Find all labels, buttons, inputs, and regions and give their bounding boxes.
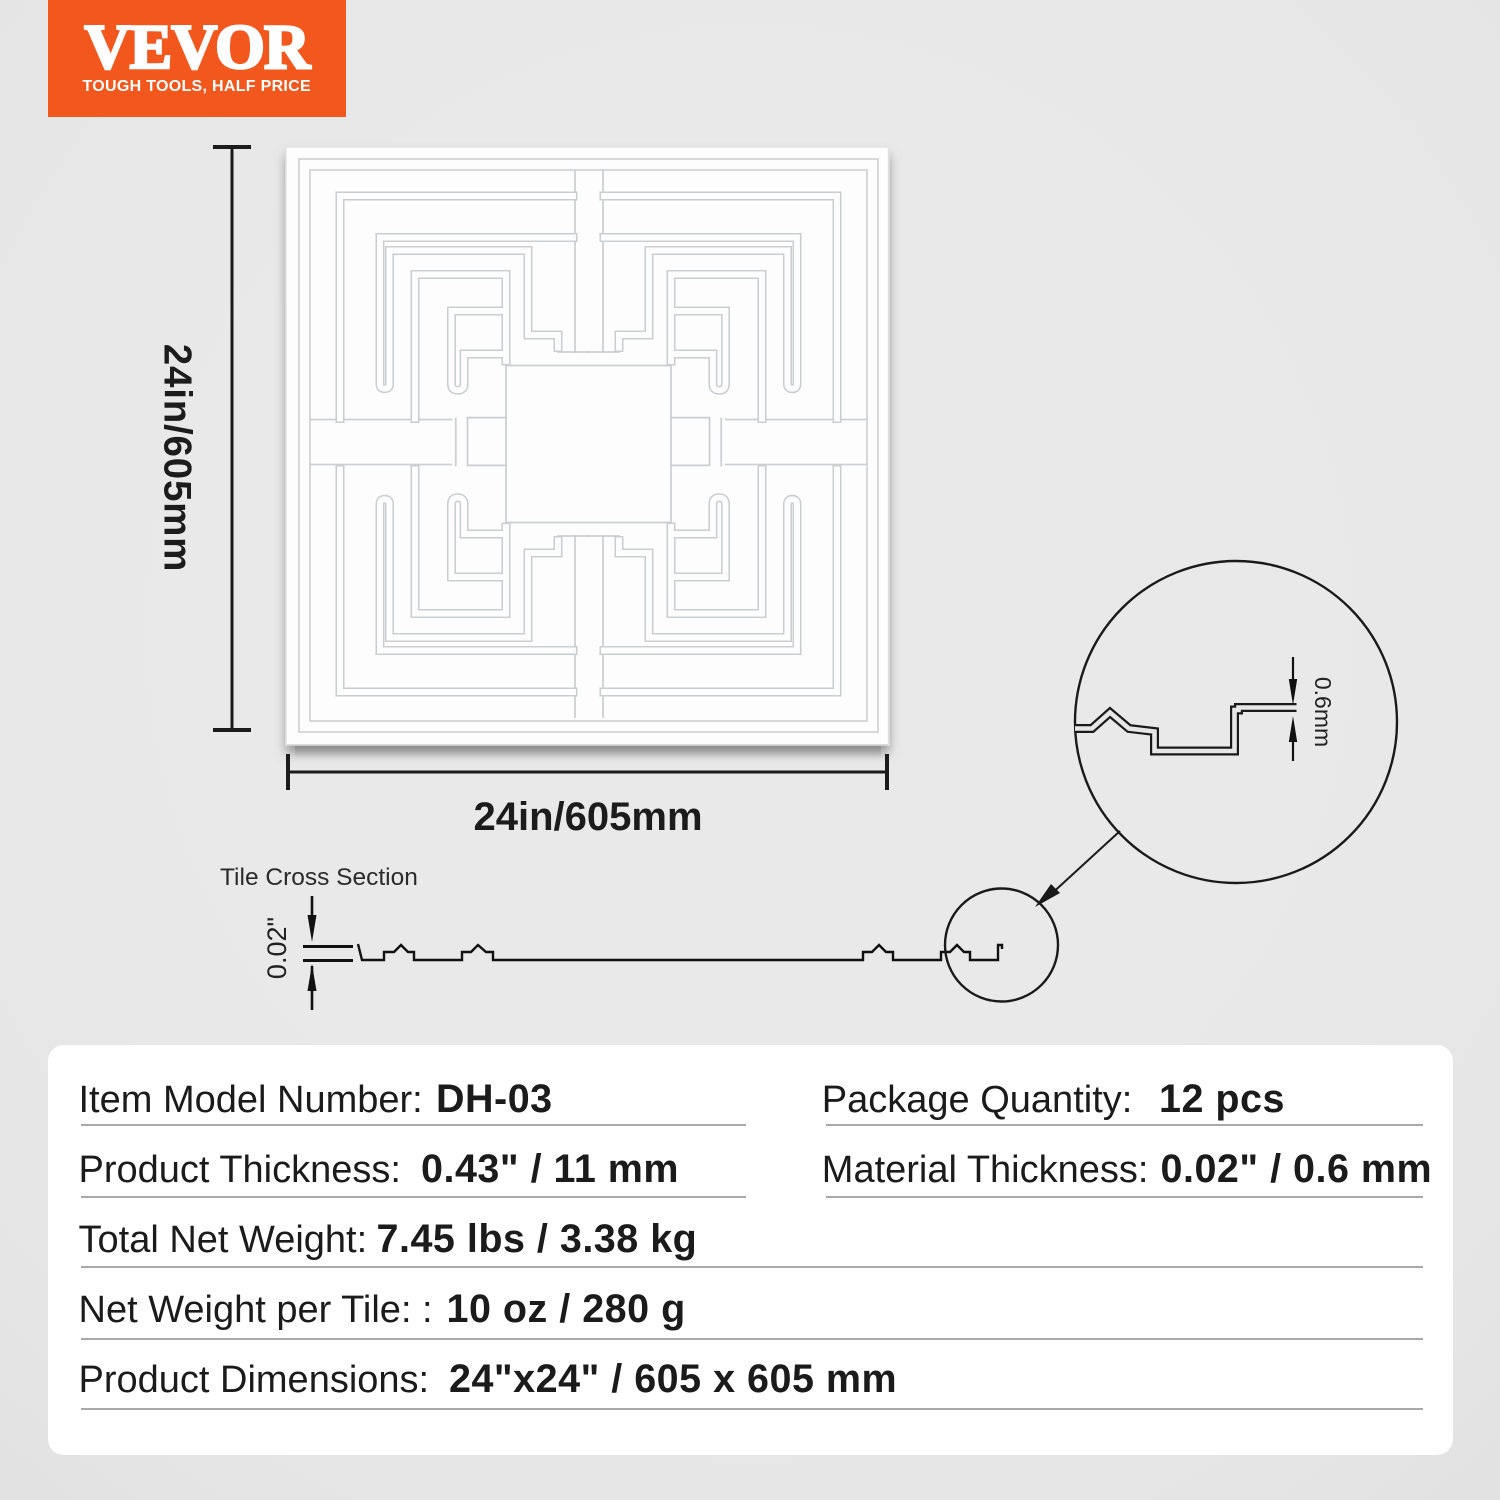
svg-text:24in/605mm: 24in/605mm xyxy=(473,795,702,839)
svg-text:24in/605mm: 24in/605mm xyxy=(156,344,199,572)
svg-text:Tile Cross Section: Tile Cross Section xyxy=(220,864,418,891)
svg-text:0.6mm: 0.6mm xyxy=(1310,677,1336,747)
svg-text:0.02": 0.02" xyxy=(262,917,292,979)
